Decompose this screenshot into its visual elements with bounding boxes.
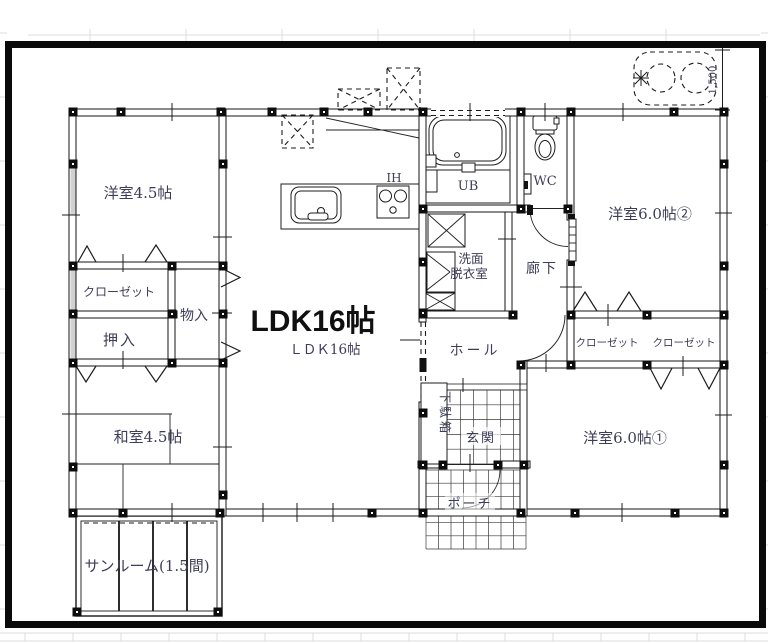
floor-plan-page: 洋室4.5帖 クローゼット 押入 物入 和室4.5帖 サンルーム(1.5間) L… (0, 0, 768, 642)
porch-label: ポーチ (447, 497, 492, 512)
sliding-door (568, 214, 576, 266)
room-east1-label: 洋室6.0帖① (583, 429, 667, 447)
ldk-main-label: LDK16帖 (250, 305, 375, 338)
genkan-label: 玄関 (466, 431, 496, 446)
ih-label: IH (386, 171, 401, 185)
closet-east2-label: クローゼット (653, 337, 716, 349)
hall-label: ホール (450, 343, 501, 359)
room-east2-label: 洋室6.0帖② (608, 205, 692, 223)
room-west-label: 洋室4.5帖 (104, 184, 173, 202)
senmen-label-2: 脱衣室 (450, 266, 488, 281)
senmen-label-1: 洗面 (458, 251, 483, 266)
ih-stove (377, 186, 409, 218)
sunroom-label: サンルーム(1.5間) (84, 557, 209, 575)
closet-east1-label: クローゼット (576, 337, 639, 349)
wc-label: WC (533, 174, 556, 189)
ldk-sub-label: ＬＤＫ16帖 (289, 342, 360, 358)
closet-west-label: クローゼット (83, 285, 155, 299)
floor-plan: 洋室4.5帖 クローゼット 押入 物入 和室4.5帖 サンルーム(1.5間) L… (0, 0, 768, 642)
washitsu-label: 和室4.5帖 (114, 428, 183, 446)
rouka-label: 廊下 (526, 260, 558, 277)
faucet-mark (633, 70, 649, 86)
oshiire-label: 押入 (103, 331, 137, 349)
dimension-label: 1,500 (708, 66, 719, 95)
kitchen-sink (291, 187, 341, 223)
monoire-label: 物入 (180, 308, 208, 324)
getabako-label: 下駄箱 (438, 391, 453, 436)
ub-label: UB (458, 179, 479, 194)
